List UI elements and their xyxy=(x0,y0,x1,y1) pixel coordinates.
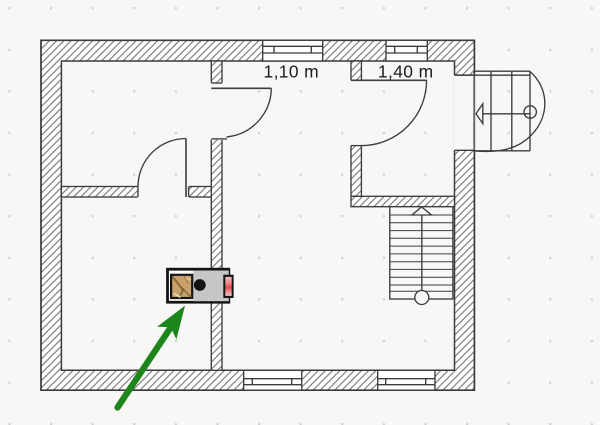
svg-text:1,40 m: 1,40 m xyxy=(378,61,434,81)
svg-text:1,10 m: 1,10 m xyxy=(264,62,320,82)
